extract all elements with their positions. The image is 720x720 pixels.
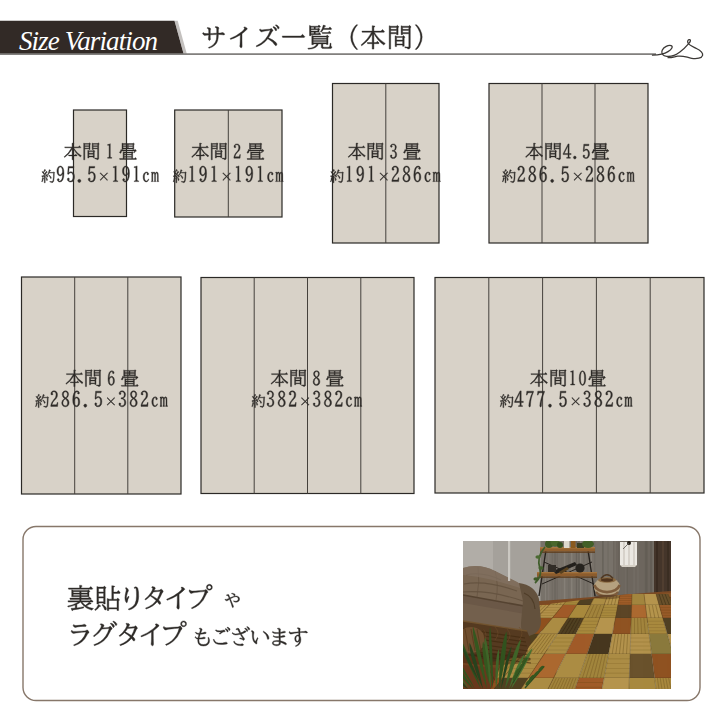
svg-text:Size Variation: Size Variation (19, 26, 158, 56)
